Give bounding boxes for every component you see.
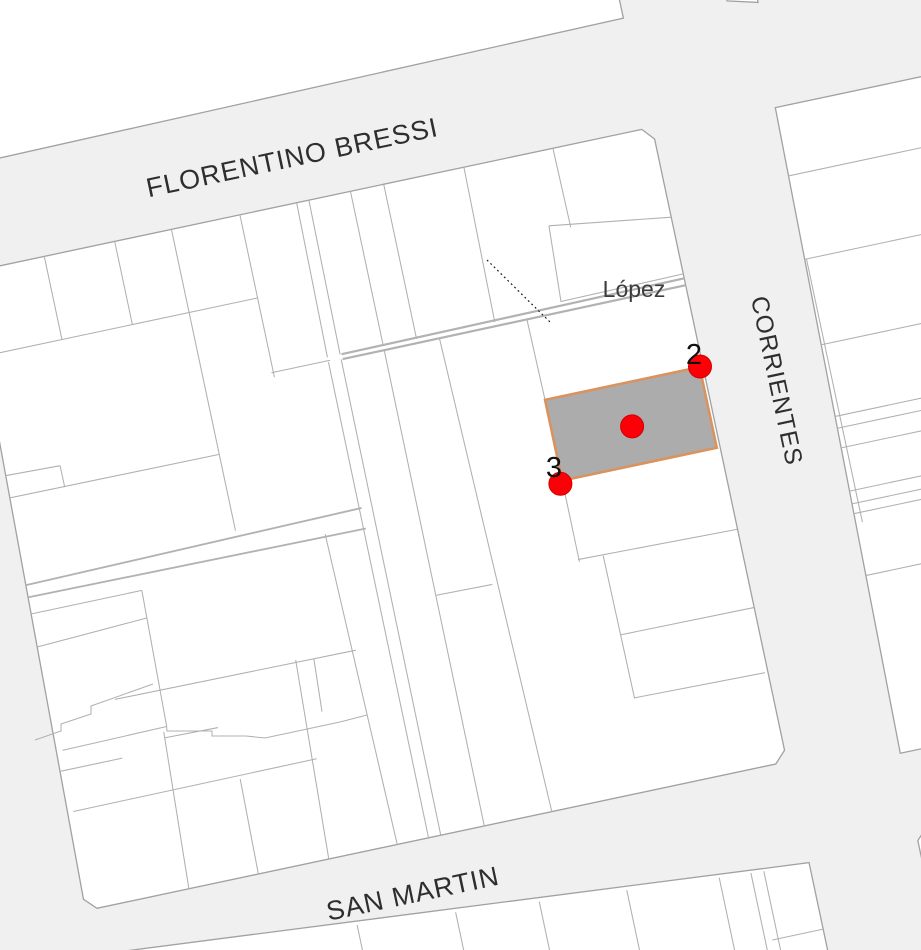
svg-text:2: 2 (686, 339, 702, 371)
svg-text:López: López (603, 276, 666, 302)
svg-text:3: 3 (546, 452, 562, 484)
